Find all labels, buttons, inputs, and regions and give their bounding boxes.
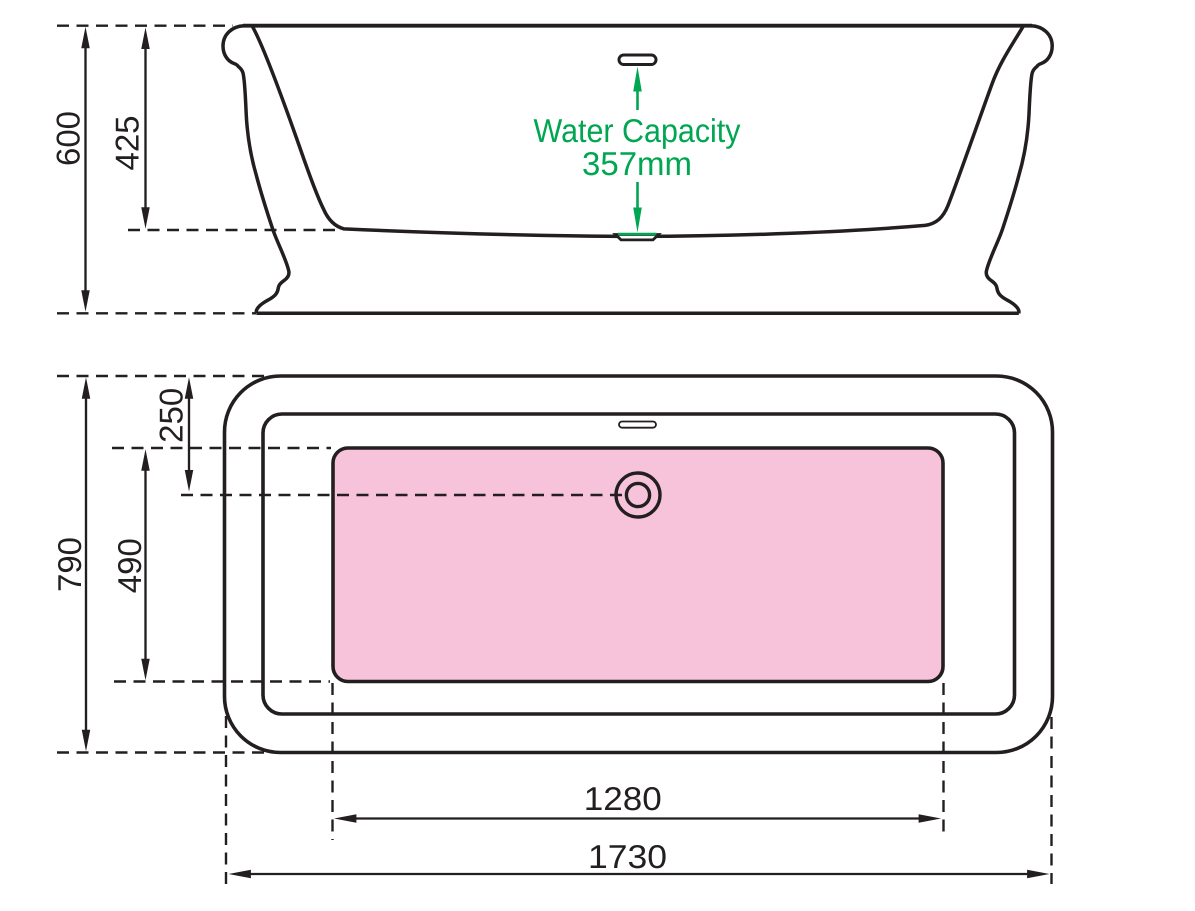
svg-text:490: 490: [111, 538, 148, 593]
svg-text:357mm: 357mm: [582, 145, 692, 182]
svg-text:790: 790: [51, 537, 88, 592]
svg-text:1280: 1280: [584, 780, 662, 817]
svg-text:1730: 1730: [588, 838, 667, 875]
svg-text:Water Capacity: Water Capacity: [534, 112, 741, 149]
svg-text:425: 425: [109, 115, 146, 170]
svg-text:250: 250: [153, 388, 190, 443]
svg-text:600: 600: [50, 111, 87, 166]
